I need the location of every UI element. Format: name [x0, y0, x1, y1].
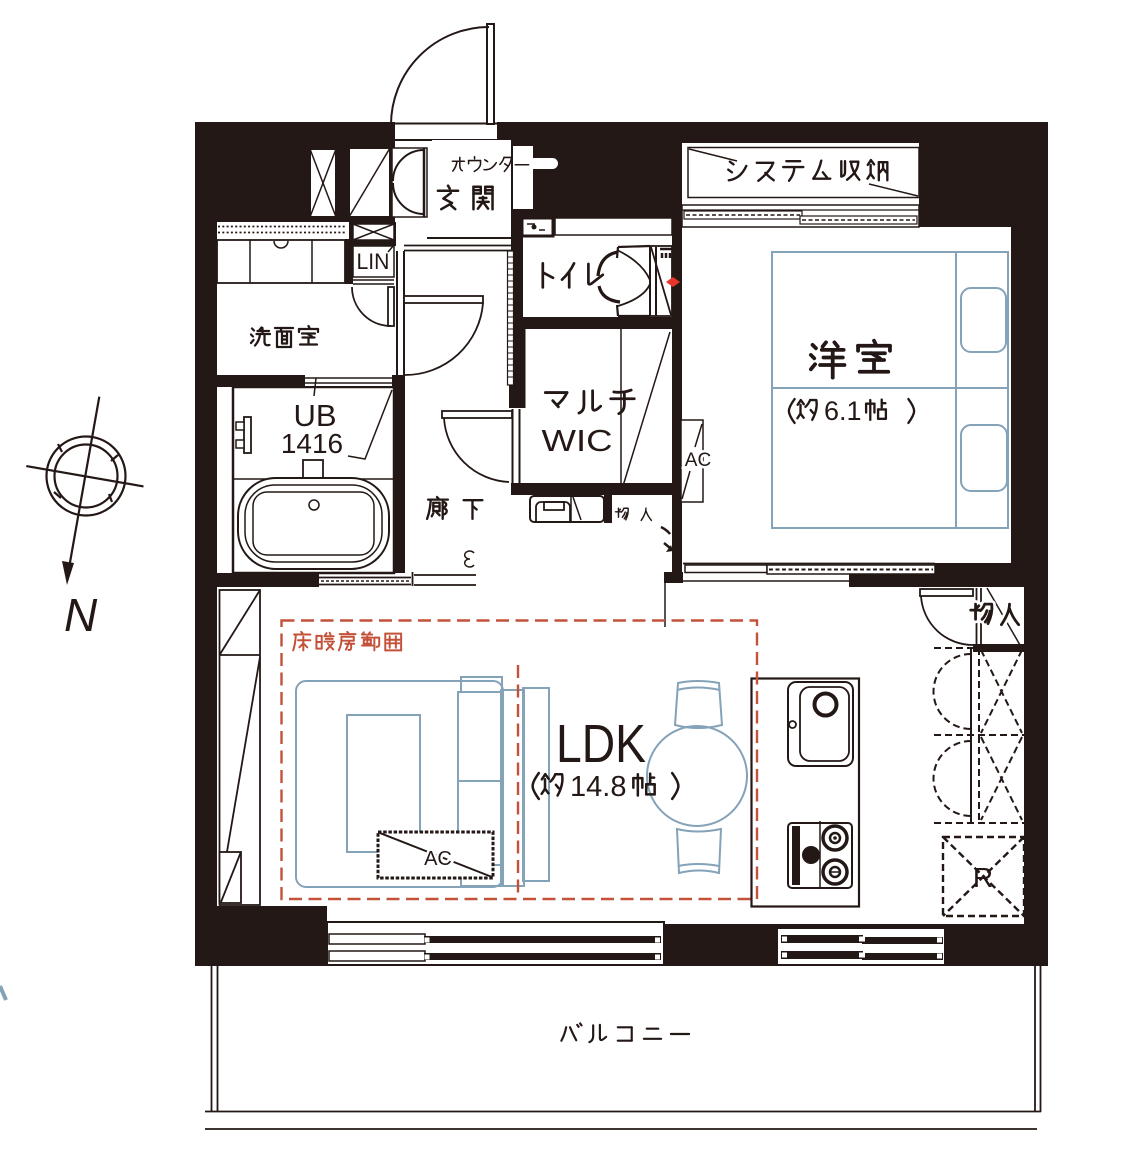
svg-text:1416: 1416: [281, 428, 343, 459]
svg-text:N: N: [64, 589, 98, 641]
svg-text:WIC: WIC: [542, 423, 613, 458]
svg-text:LIN: LIN: [357, 249, 390, 274]
svg-text:AC: AC: [424, 848, 452, 870]
svg-text:AC: AC: [685, 450, 711, 471]
svg-text:6.1: 6.1: [824, 396, 862, 426]
svg-text:LDK: LDK: [556, 714, 646, 774]
svg-text:R: R: [973, 862, 993, 893]
svg-text:14.8: 14.8: [570, 771, 626, 803]
